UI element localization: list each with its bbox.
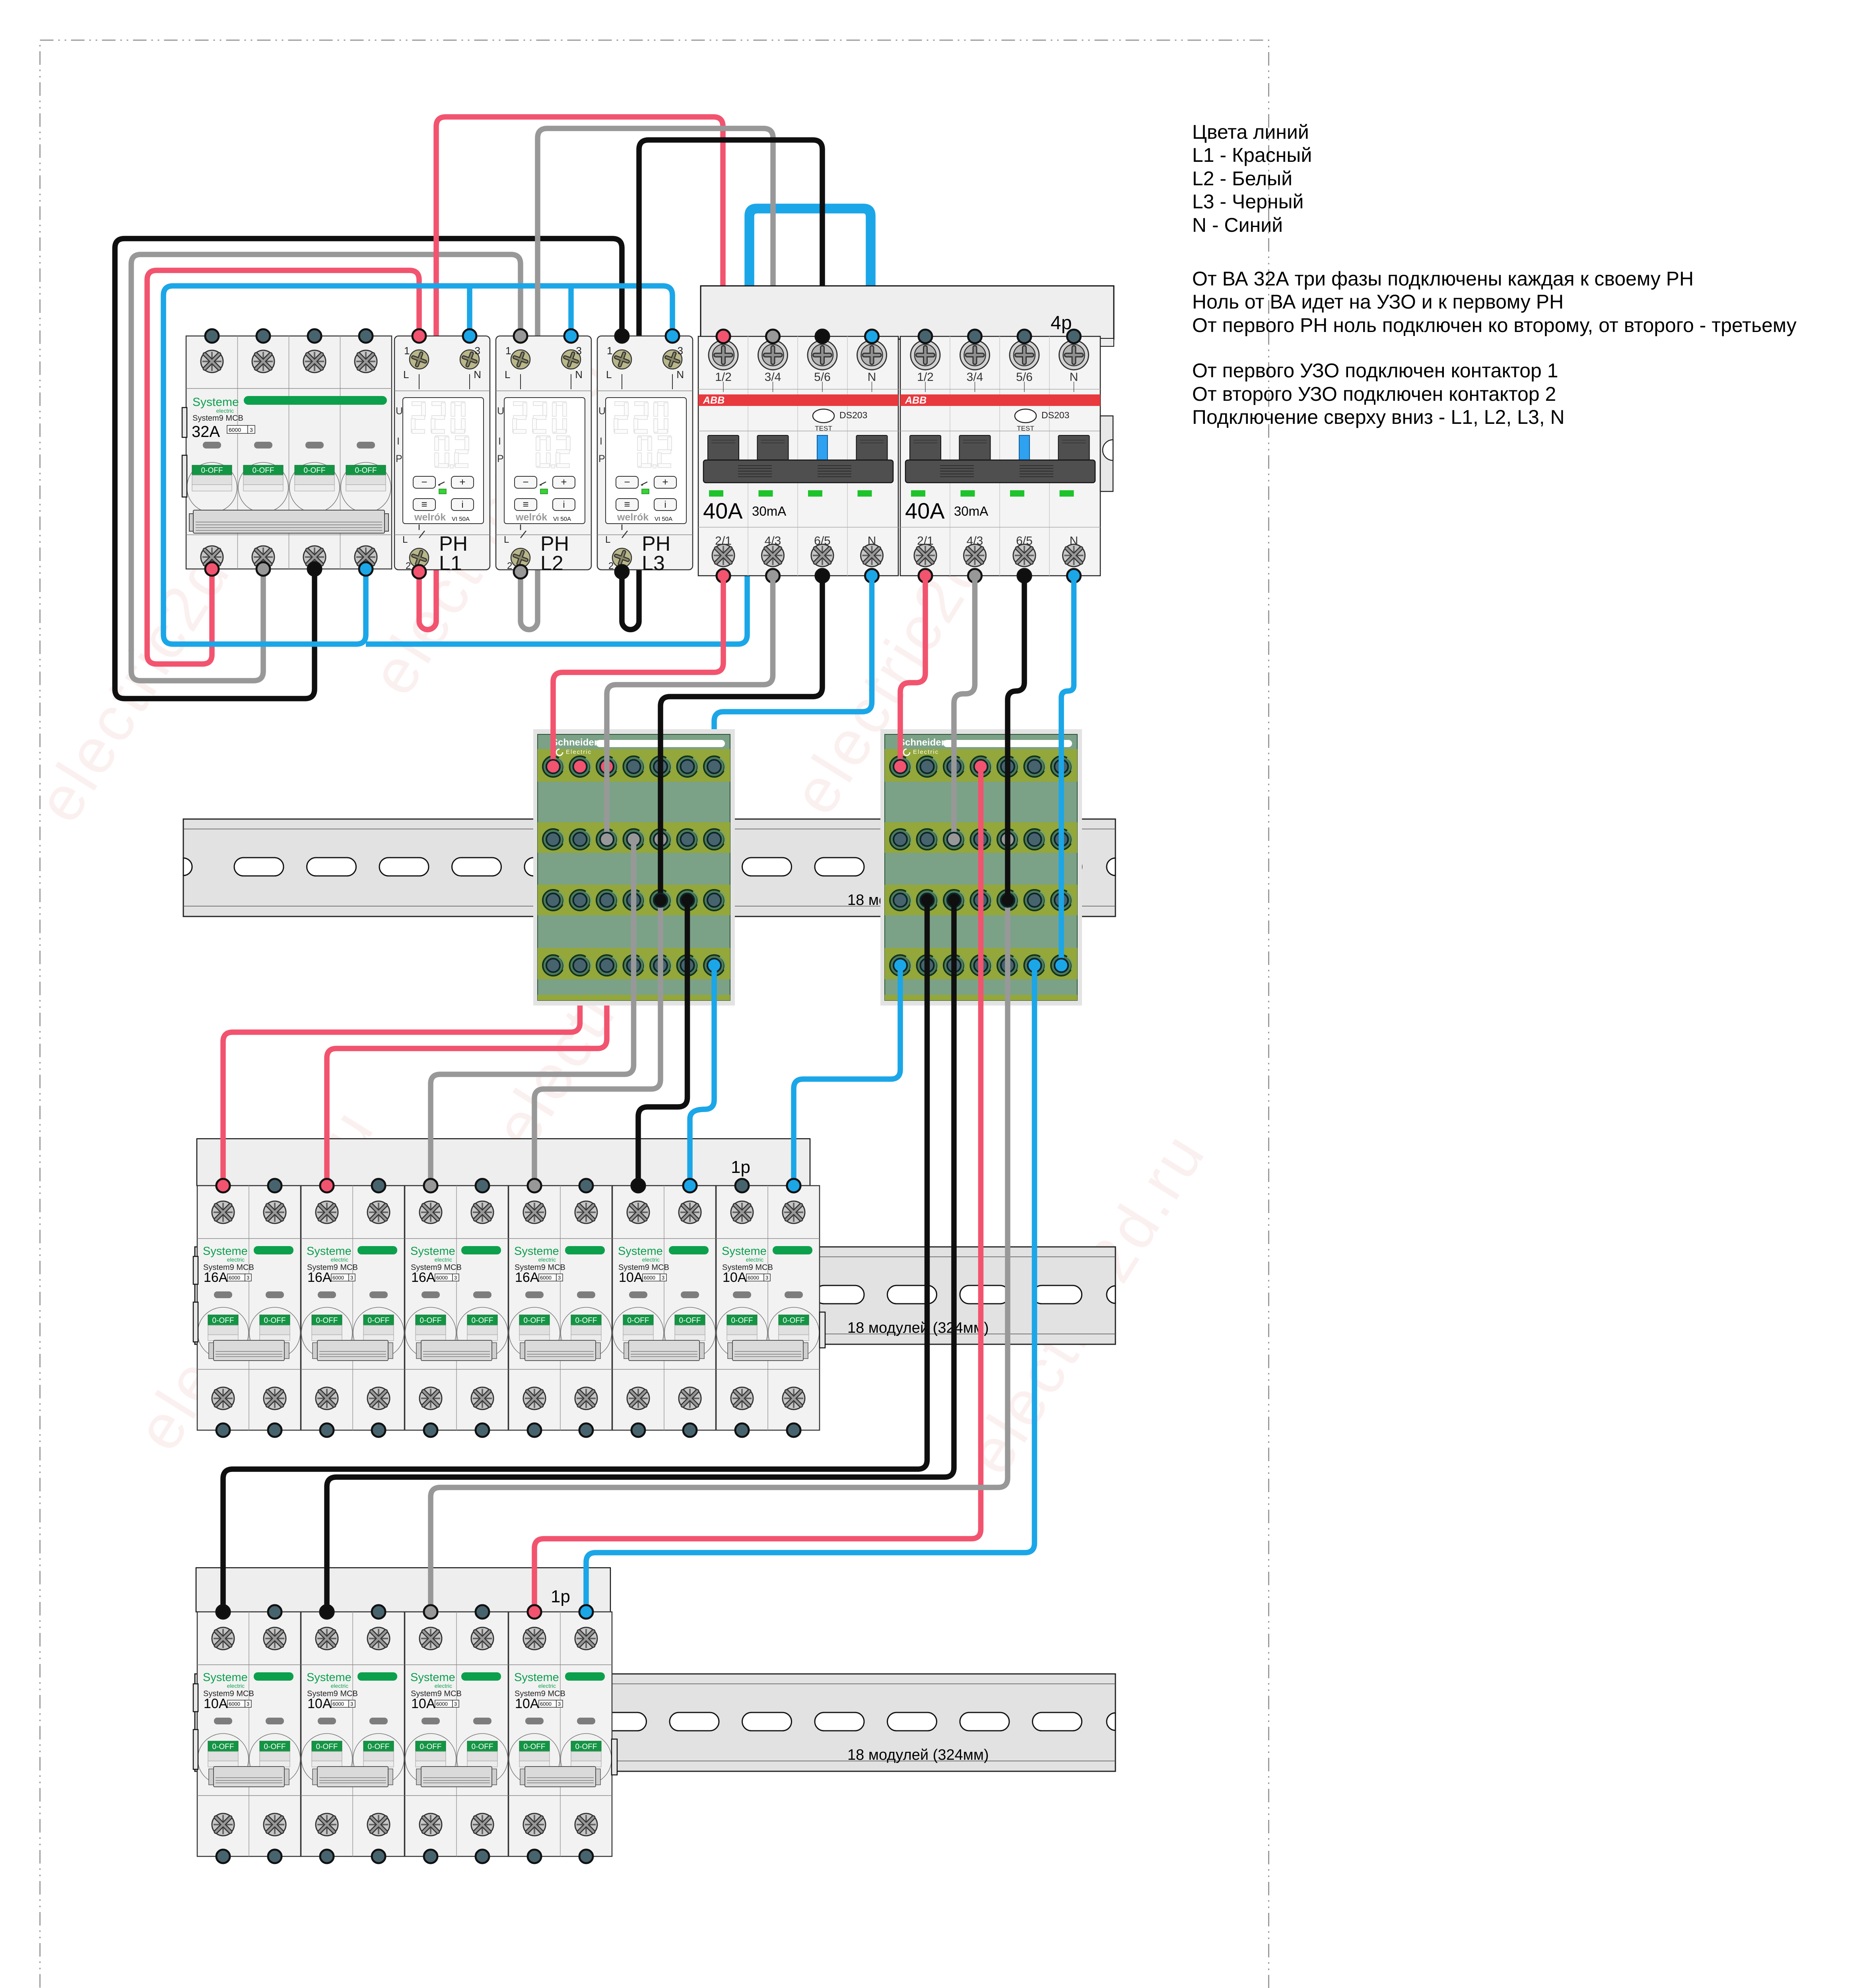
svg-text:1p: 1p [731,1157,750,1177]
svg-text:10A: 10A [515,1696,539,1711]
svg-text:L1 - Красный: L1 - Красный [1192,144,1312,166]
svg-text:L2: L2 [540,552,563,575]
svg-text:16A: 16A [515,1270,539,1285]
svg-text:L2 - Белый: L2 - Белый [1192,167,1292,190]
svg-text:16A: 16A [411,1270,435,1285]
svg-text:Подключение сверху вниз - L1,: Подключение сверху вниз - L1, L2, L3, N [1192,406,1565,428]
svg-text:16A: 16A [204,1270,228,1285]
svg-text:От второго УЗО подключен конта: От второго УЗО подключен контактор 2 [1192,383,1556,405]
svg-text:10A: 10A [619,1270,643,1285]
svg-text:L1: L1 [439,552,462,575]
svg-text:Ноль от ВА идет на УЗО и к пер: Ноль от ВА идет на УЗО и к первому РН [1192,291,1564,313]
svg-text:От первого РН ноль подключен к: От первого РН ноль подключен ко второму,… [1192,314,1797,336]
svg-text:L3: L3 [642,552,665,575]
svg-text:От ВА 32А три фазы подключены: От ВА 32А три фазы подключены каждая к с… [1192,268,1694,290]
svg-text:10A: 10A [307,1696,332,1711]
svg-text:16A: 16A [307,1270,332,1285]
svg-text:1p: 1p [551,1587,570,1606]
svg-text:10A: 10A [723,1270,747,1285]
svg-text:L3 - Черный: L3 - Черный [1192,190,1303,213]
svg-text:18 модулей (324мм): 18 модулей (324мм) [847,1320,989,1336]
svg-text:10A: 10A [204,1696,228,1711]
svg-text:10A: 10A [411,1696,435,1711]
svg-text:18 модулей (324мм): 18 модулей (324мм) [847,1747,989,1763]
svg-text:4p: 4p [1051,313,1072,334]
svg-text:От первого УЗО подключен конта: От первого УЗО подключен контактор 1 [1192,359,1558,382]
svg-text:Цвета линий: Цвета линий [1192,121,1309,143]
svg-text:N - Синий: N - Синий [1192,214,1283,236]
